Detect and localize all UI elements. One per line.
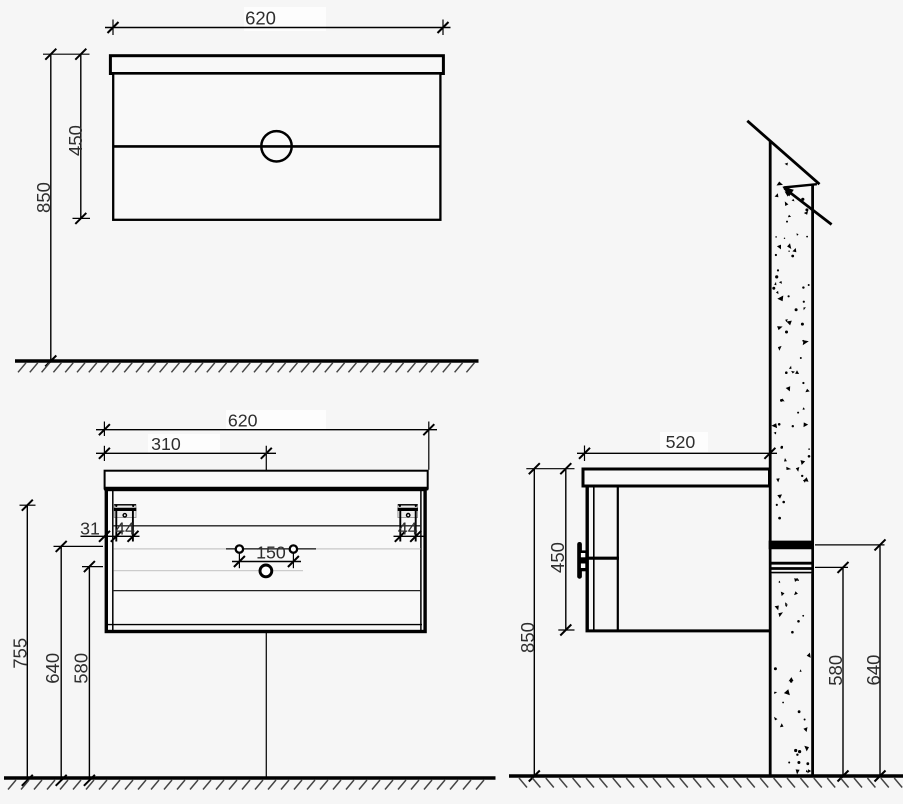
- svg-text:150: 150: [256, 543, 286, 563]
- svg-text:850: 850: [517, 622, 538, 653]
- svg-text:580: 580: [825, 655, 846, 686]
- svg-text:755: 755: [9, 638, 30, 669]
- svg-text:44: 44: [398, 519, 418, 539]
- svg-text:31: 31: [80, 519, 100, 539]
- svg-text:310: 310: [151, 434, 181, 454]
- svg-text:850: 850: [33, 182, 54, 213]
- svg-text:640: 640: [42, 653, 63, 684]
- svg-text:450: 450: [547, 542, 568, 573]
- svg-text:580: 580: [70, 653, 91, 684]
- svg-text:640: 640: [863, 655, 884, 686]
- svg-text:450: 450: [65, 125, 86, 156]
- svg-text:620: 620: [245, 8, 276, 29]
- svg-text:520: 520: [666, 432, 696, 452]
- svg-text:44: 44: [115, 519, 135, 539]
- svg-text:620: 620: [228, 410, 258, 430]
